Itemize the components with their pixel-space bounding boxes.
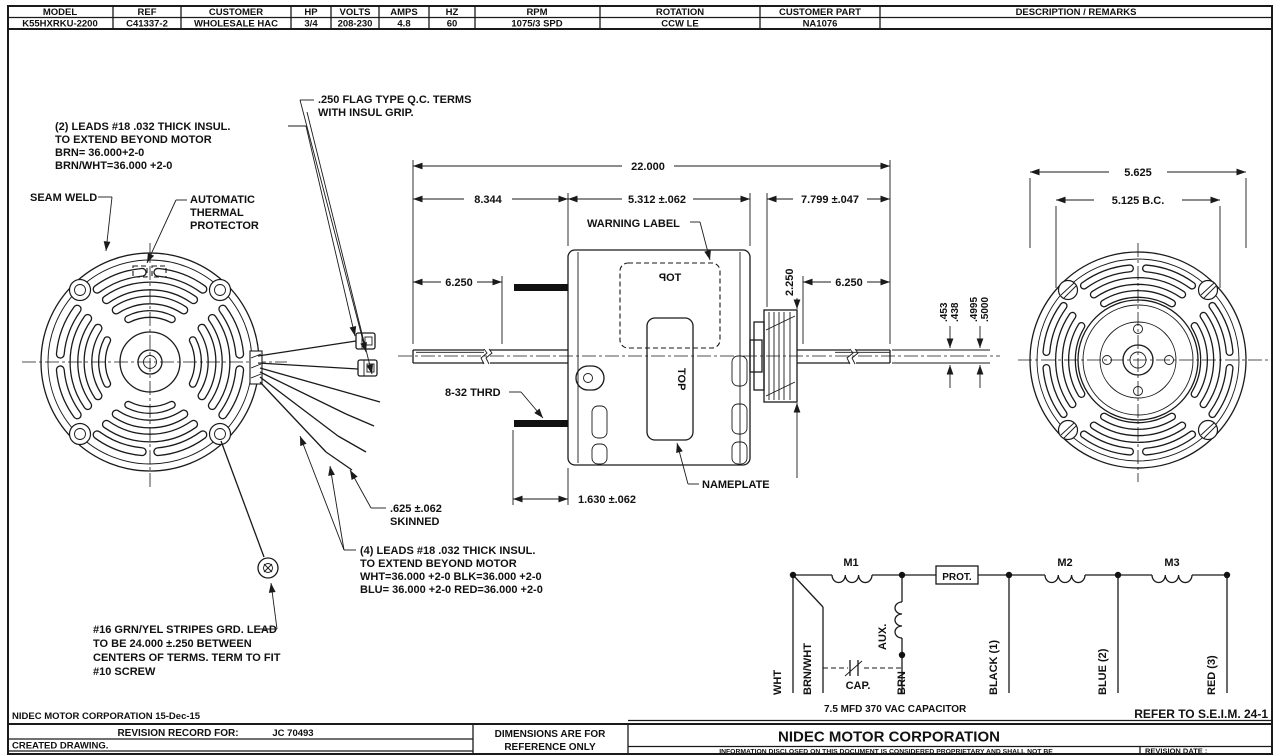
capacitor-spec: 7.5 MFD 370 VAC CAPACITOR — [824, 704, 967, 715]
value-hz: 60 — [447, 19, 458, 30]
dim-shaft-dia-1: .4995 — [969, 297, 980, 322]
spec-table: MODEL REF CUSTOMER HP VOLTS AMPS HZ RPM … — [8, 6, 1272, 30]
note-leads2-4: BRN/WHT=36.000 +2-0 — [55, 160, 172, 172]
label-brnwht: BRN/WHT — [802, 643, 814, 695]
revision-entry: CREATED DRAWING. — [12, 741, 108, 752]
label-blue: BLUE (2) — [1097, 648, 1109, 695]
value-customer-part: NA1076 — [803, 19, 838, 30]
dim-right-shaft: 6.250 — [835, 277, 863, 289]
dim-flat-1: .453 — [939, 302, 950, 322]
rear-end-view — [1018, 243, 1268, 482]
dim-body-length: 5.312 ±.062 — [628, 194, 686, 206]
label-m2: M2 — [1057, 557, 1072, 569]
note-leads4-2: TO EXTEND BEYOND MOTOR — [360, 558, 517, 570]
note-ground-1: #16 GRN/YEL STRIPES GRD. LEAD — [93, 624, 277, 636]
through-bolt-stud — [514, 420, 568, 427]
through-bolt-stud — [514, 284, 568, 291]
col-header-customer: CUSTOMER — [209, 7, 263, 18]
drawing-canvas: MODEL REF CUSTOMER HP VOLTS AMPS HZ RPM … — [0, 0, 1280, 755]
note-leads2-2: TO EXTEND BEYOND MOTOR — [55, 134, 212, 146]
note-nameplate: NAMEPLATE — [702, 479, 770, 491]
col-header-volts: VOLTS — [340, 7, 371, 18]
qc-terminal-leads — [258, 341, 358, 369]
note-thermal-3: PROTECTOR — [190, 220, 259, 232]
col-header-amps: AMPS — [390, 7, 417, 18]
note-ground-3: CENTERS OF TERMS. TERM TO FIT — [93, 652, 281, 664]
proprietary-notice: INFORMATION DISCLOSED ON THIS DOCUMENT I… — [719, 749, 1053, 755]
label-m1: M1 — [843, 557, 858, 569]
note-skinned-2: SKINNED — [390, 516, 440, 528]
note-seam-weld: SEAM WELD — [30, 192, 97, 204]
note-thrd: 8-32 THRD — [445, 387, 501, 399]
dim-hub-dia: 2.250 — [784, 268, 796, 296]
dim-stud-extension: 1.630 ±.062 — [578, 494, 636, 506]
col-header-rpm: RPM — [526, 7, 547, 18]
value-rpm: 1075/3 SPD — [511, 19, 562, 30]
value-customer: WHOLESALE HAC — [194, 19, 278, 30]
note-thermal-1: AUTOMATIC — [190, 194, 255, 206]
col-header-customer-part: CUSTOMER PART — [779, 7, 861, 18]
dim-flat-2: .438 — [950, 302, 961, 322]
revision-record-label: REVISION RECORD FOR: — [117, 728, 238, 739]
dims-reference-note-1: DIMENSIONS ARE FOR — [495, 729, 607, 740]
capacitor-branch — [823, 660, 902, 676]
dim-8344: 8.344 — [474, 194, 502, 206]
note-thermal-2: THERMAL — [190, 207, 244, 219]
front-end-view — [22, 243, 380, 578]
title-block: NIDEC MOTOR CORPORATION 15-Dec-15 REVISI… — [8, 711, 1272, 755]
coil-m3 — [1152, 575, 1192, 583]
note-flag-terms-1: .250 FLAG TYPE Q.C. TERMS — [318, 94, 471, 106]
col-header-hz: HZ — [446, 7, 459, 18]
note-warning-label: WARNING LABEL — [587, 218, 680, 230]
label-cap: CAP. — [846, 680, 871, 692]
dim-7799: 7.799 ±.047 — [801, 194, 859, 206]
top-marking-vertical: TOP — [675, 368, 687, 390]
label-black: BLACK (1) — [988, 640, 1000, 695]
note-flag-terms-2: WITH INSUL GRIP. — [318, 107, 414, 119]
col-header-hp: HP — [304, 7, 318, 18]
dim-bolt-circle: 5.125 B.C. — [1112, 195, 1165, 207]
coil-aux — [895, 602, 902, 638]
engineering-drawing-page: MODEL REF CUSTOMER HP VOLTS AMPS HZ RPM … — [0, 0, 1280, 755]
keyhole-slot — [576, 366, 604, 390]
body-vent-slots — [592, 356, 747, 464]
col-header-rotation: ROTATION — [656, 7, 704, 18]
note-skinned-1: .625 ±.062 — [390, 503, 442, 515]
dim-left-shaft: 6.250 — [445, 277, 473, 289]
wiring-schematic: M1 M2 M3 PROT. AUX. WHT BRN/WHT BRN BLAC… — [772, 557, 1268, 721]
col-header-description: DESCRIPTION / REMARKS — [1016, 7, 1137, 18]
dim-end-od: 5.625 — [1124, 167, 1152, 179]
revision-date-label: REVISION DATE : — [1145, 747, 1207, 755]
value-hp: 3/4 — [304, 19, 318, 30]
note-leads4-3: WHT=36.000 +2-0 BLK=36.000 +2-0 — [360, 571, 542, 583]
note-leads4-1: (4) LEADS #18 .032 THICK INSUL. — [360, 545, 535, 557]
value-volts: 208-230 — [338, 19, 373, 30]
value-ref: C41337-2 — [126, 19, 168, 30]
value-amps: 4.8 — [397, 19, 410, 30]
motor-leads — [260, 368, 380, 470]
col-header-model: MODEL — [43, 7, 78, 18]
label-aux: AUX. — [877, 624, 889, 650]
top-marking-mirrored: TOP — [659, 272, 681, 284]
label-red: RED (3) — [1206, 655, 1218, 695]
label-wht: WHT — [772, 670, 784, 695]
revision-record-number: JC 70493 — [272, 728, 313, 739]
ground-lead — [221, 441, 278, 578]
dims-reference-note-2: REFERENCE ONLY — [504, 742, 596, 753]
note-leads2-3: BRN= 36.000+2-0 — [55, 147, 144, 159]
coil-m1 — [832, 575, 872, 583]
left-corp-header: NIDEC MOTOR CORPORATION 15-Dec-15 — [12, 711, 201, 722]
value-rotation: CCW LE — [661, 19, 698, 30]
note-leads4-4: BLU= 36.000 +2-0 RED=36.000 +2-0 — [360, 584, 543, 596]
col-header-ref: REF — [138, 7, 157, 18]
note-ground-4: #10 SCREW — [93, 666, 156, 678]
company-name: NIDEC MOTOR CORPORATION — [778, 729, 1000, 746]
label-m3: M3 — [1164, 557, 1179, 569]
label-prot: PROT. — [942, 572, 972, 583]
coil-m2 — [1045, 575, 1085, 583]
junction-nodes — [790, 572, 1230, 658]
flag-qc-terminal — [356, 333, 377, 376]
note-leads2-1: (2) LEADS #18 .032 THICK INSUL. — [55, 121, 230, 133]
seim-reference: REFER TO S.E.I.M. 24-1 — [1134, 707, 1268, 721]
value-model: K55HXRKU-2200 — [22, 19, 98, 30]
dim-overall-length: 22.000 — [631, 161, 665, 173]
dim-shaft-dia-2: .5000 — [980, 297, 991, 322]
note-ground-2: TO BE 24.000 ±.250 BETWEEN — [93, 638, 252, 650]
label-brn: BRN — [896, 671, 908, 695]
